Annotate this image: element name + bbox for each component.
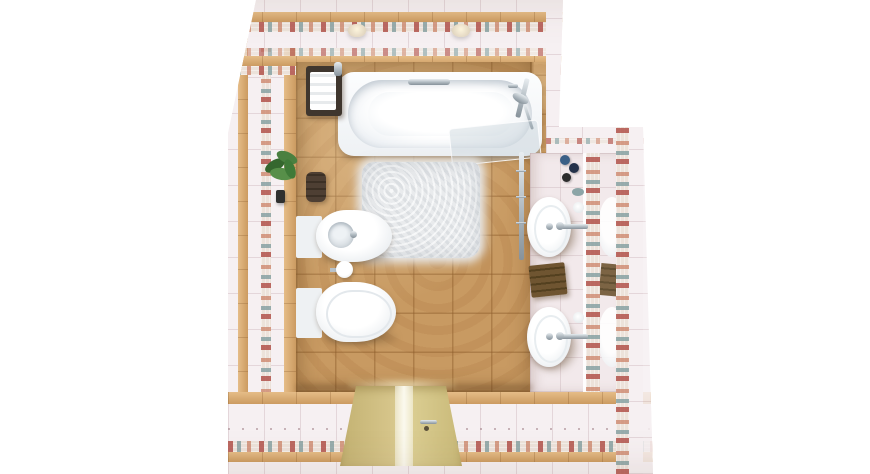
towel-rail [519, 152, 524, 260]
top-wall-right-edge [546, 0, 563, 127]
top-wall-tan-strip [228, 12, 568, 22]
top-wall-tiles [228, 32, 568, 48]
bathtub-grab-bar [408, 79, 450, 85]
right-wall-mosaic-border [616, 127, 629, 474]
bidet-faucet-icon [350, 231, 357, 238]
right-wall-tiles [629, 127, 643, 474]
room-plan [0, 0, 870, 474]
washbasin-top-drain [546, 223, 553, 230]
soap-dish-teal [572, 188, 584, 196]
soap-dish-top [573, 202, 584, 213]
soap-dish-bottom [573, 312, 584, 323]
door-keyhole [424, 426, 429, 431]
caddy-bottle [334, 62, 342, 76]
top-wall-mosaic-border-2 [228, 48, 568, 56]
towel-rail-rung [516, 170, 526, 172]
wall-lamp-right [452, 24, 470, 37]
soap-dispenser [276, 190, 285, 203]
toiletry-bottle-blue [560, 155, 570, 165]
wall-lamp-left [348, 24, 366, 37]
toiletry-bottle-navy [569, 163, 579, 173]
door-handle [420, 420, 437, 424]
toilet-seat-rim [326, 290, 392, 338]
washbasin-bottom-drain [546, 333, 553, 340]
faucet-bottom-knob [556, 332, 564, 340]
door-glass-insert [395, 386, 413, 466]
top-wall-mosaic-border [228, 22, 568, 32]
faucet-top-knob [556, 222, 564, 230]
entrance-door [340, 386, 462, 466]
toiletry-bottle-dark [562, 173, 571, 182]
faucet-top [560, 224, 588, 229]
faucet-bottom [560, 334, 588, 339]
hand-towel [306, 172, 326, 202]
rolled-towels [310, 72, 336, 110]
top-wall-outer-tiles [228, 0, 568, 12]
bathroom-render [0, 0, 870, 474]
right-wall-outer-tiles [643, 127, 655, 474]
toilet-paper-holder [336, 261, 353, 278]
towel-rail-rung-3 [516, 222, 526, 224]
bidet [316, 210, 392, 262]
shower-mixer-spout [508, 84, 518, 88]
towel-rail-rung-2 [516, 196, 526, 198]
towel-stack [528, 262, 567, 298]
plant [260, 144, 304, 192]
toilet [316, 282, 396, 342]
